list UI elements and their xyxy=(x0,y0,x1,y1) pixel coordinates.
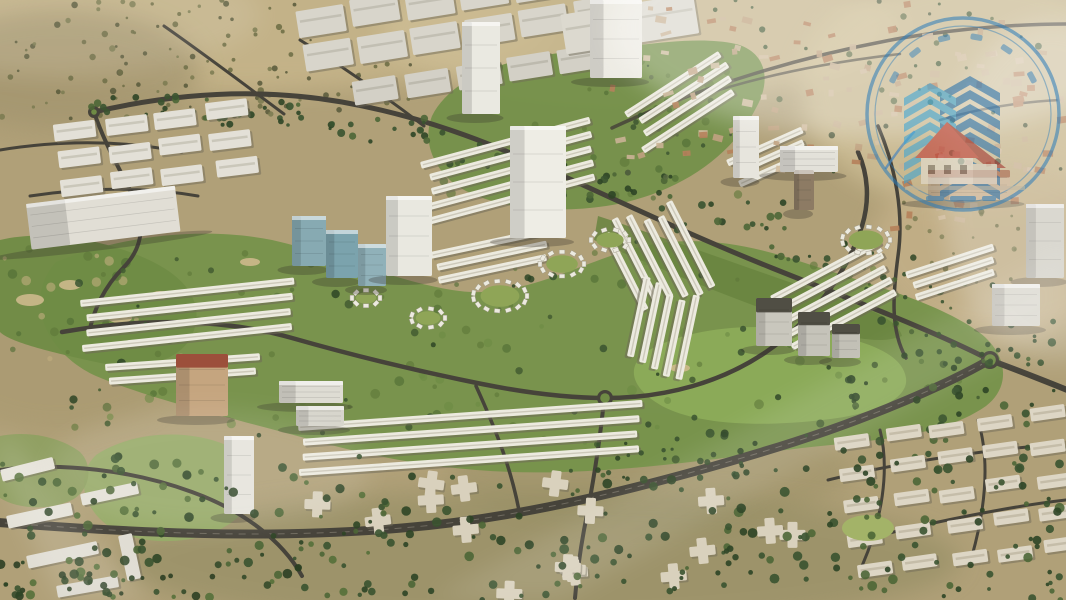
masterplan-aerial-render xyxy=(0,0,1066,600)
aerial-scene-canvas xyxy=(0,0,1066,600)
